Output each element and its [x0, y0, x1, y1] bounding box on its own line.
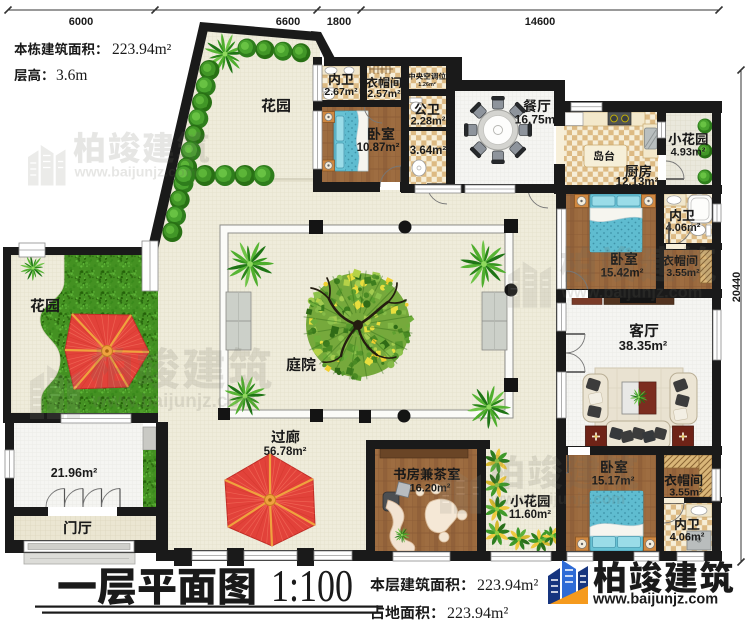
svg-text:www.baijunjz.com: www.baijunjz.com — [91, 391, 256, 412]
svg-text:www.baijunjz.com: www.baijunjz.com — [560, 283, 702, 301]
svg-text:2.57m²: 2.57m² — [367, 88, 401, 100]
svg-text:6000: 6000 — [69, 16, 93, 28]
svg-text:3.6m: 3.6m — [56, 67, 87, 84]
svg-text:www.baijunjz.com: www.baijunjz.com — [490, 491, 625, 508]
svg-text:4.06m²: 4.06m² — [670, 532, 705, 544]
svg-text:4.06m²: 4.06m² — [666, 222, 701, 234]
svg-text:10.87m²: 10.87m² — [357, 142, 400, 154]
svg-text:2.67m²: 2.67m² — [324, 86, 358, 98]
svg-text:3.55m²: 3.55m² — [669, 487, 703, 499]
svg-text:1:100: 1:100 — [271, 560, 353, 611]
svg-text:4.93m²: 4.93m² — [671, 147, 706, 159]
svg-text:www.baijunjz.com: www.baijunjz.com — [74, 165, 198, 181]
svg-text:1800: 1800 — [327, 16, 351, 28]
svg-text:16.75m²: 16.75m² — [515, 113, 560, 127]
svg-text:20440: 20440 — [731, 272, 743, 303]
svg-text:223.94m²: 223.94m² — [477, 577, 538, 594]
svg-text:223.94m²: 223.94m² — [447, 605, 508, 622]
svg-text:3.64m²: 3.64m² — [410, 145, 447, 157]
svg-text:6600: 6600 — [276, 16, 300, 28]
svg-text:14600: 14600 — [525, 16, 556, 28]
svg-text:www.baijunjz.com: www.baijunjz.com — [592, 592, 718, 608]
svg-text:2.28m²: 2.28m² — [411, 116, 446, 128]
svg-text:11.60m²: 11.60m² — [509, 509, 551, 521]
svg-text:38.35m²: 38.35m² — [619, 338, 668, 353]
svg-text:1.26m²: 1.26m² — [418, 81, 436, 88]
svg-text:223.94m²: 223.94m² — [112, 41, 172, 58]
svg-text:21.96m²: 21.96m² — [51, 466, 98, 480]
